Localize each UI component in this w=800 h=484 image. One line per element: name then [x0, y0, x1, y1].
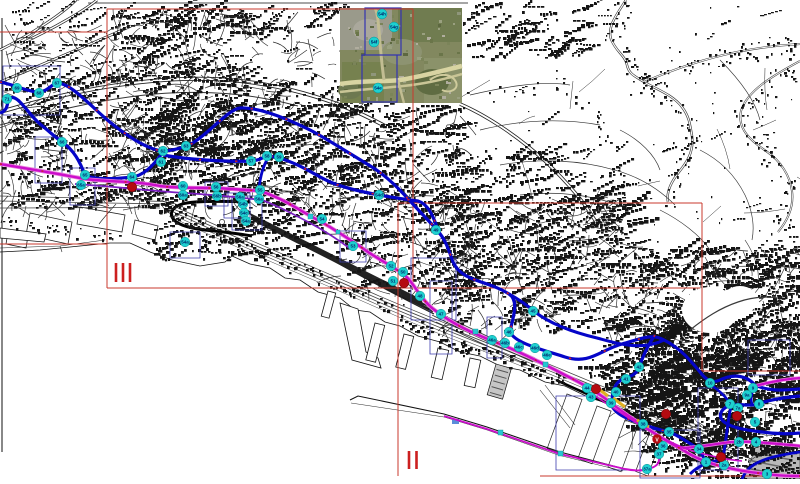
svg-text:46a: 46a: [488, 338, 496, 343]
svg-text:45: 45: [530, 309, 536, 314]
svg-text:38: 38: [640, 422, 646, 427]
svg-text:65: 65: [82, 173, 88, 178]
svg-text:63: 63: [183, 144, 189, 149]
svg-text:67: 67: [54, 81, 60, 86]
svg-text:2b: 2b: [736, 440, 742, 445]
svg-text:51: 51: [390, 279, 396, 284]
svg-text:10: 10: [707, 381, 713, 386]
svg-text:7a: 7a: [735, 406, 741, 411]
svg-text:56a: 56a: [255, 197, 263, 202]
svg-text:56: 56: [213, 185, 219, 190]
svg-text:66: 66: [59, 140, 65, 145]
svg-text:46b: 46b: [501, 341, 509, 346]
svg-text:2a: 2a: [721, 463, 727, 468]
svg-text:54f: 54f: [371, 40, 378, 45]
svg-text:35: 35: [666, 430, 672, 435]
svg-text:54a: 54a: [181, 240, 189, 245]
svg-text:71: 71: [4, 97, 10, 102]
svg-text:49: 49: [433, 228, 439, 233]
svg-text:56b: 56b: [213, 194, 221, 199]
svg-text:54d: 54d: [375, 193, 383, 198]
svg-text:43: 43: [588, 395, 594, 400]
svg-text:60a: 60a: [179, 193, 187, 198]
svg-text:59: 59: [276, 155, 282, 160]
svg-text:54e: 54e: [374, 86, 382, 91]
svg-text:37: 37: [656, 452, 662, 457]
svg-text:47: 47: [438, 312, 444, 317]
svg-text:68: 68: [36, 91, 42, 96]
svg-text:54c: 54c: [240, 211, 248, 216]
svg-text:42: 42: [636, 365, 642, 370]
svg-text:54: 54: [319, 217, 325, 222]
svg-text:54a: 54a: [242, 219, 250, 224]
svg-text:55: 55: [257, 188, 263, 193]
svg-text:46e: 46e: [543, 353, 551, 358]
svg-text:34: 34: [696, 447, 702, 452]
svg-text:9a: 9a: [744, 393, 750, 398]
svg-text:53: 53: [350, 244, 356, 249]
svg-text:46: 46: [506, 330, 512, 335]
svg-text:54b: 54b: [239, 202, 247, 207]
svg-text:36: 36: [660, 444, 666, 449]
svg-text:56a: 56a: [236, 195, 244, 200]
svg-text:52: 52: [388, 264, 394, 269]
svg-text:69: 69: [14, 86, 20, 91]
svg-text:46c: 46c: [515, 345, 523, 350]
svg-text:50: 50: [400, 270, 406, 275]
svg-text:60: 60: [180, 184, 186, 189]
svg-text:48: 48: [417, 294, 423, 299]
svg-text:44: 44: [584, 386, 590, 391]
svg-text:37a: 37a: [643, 467, 651, 472]
svg-text:40: 40: [613, 390, 619, 395]
svg-text:57: 57: [248, 159, 254, 164]
svg-text:58: 58: [264, 154, 270, 159]
svg-text:64: 64: [129, 175, 135, 180]
svg-text:61: 61: [158, 160, 164, 165]
svg-text:65a: 65a: [77, 183, 85, 188]
svg-text:46d: 46d: [531, 346, 539, 351]
svg-text:41: 41: [623, 377, 629, 382]
svg-text:39: 39: [608, 401, 614, 406]
svg-text:62: 62: [160, 149, 166, 154]
svg-text:54h: 54h: [378, 12, 386, 17]
svg-text:54g: 54g: [390, 25, 398, 30]
